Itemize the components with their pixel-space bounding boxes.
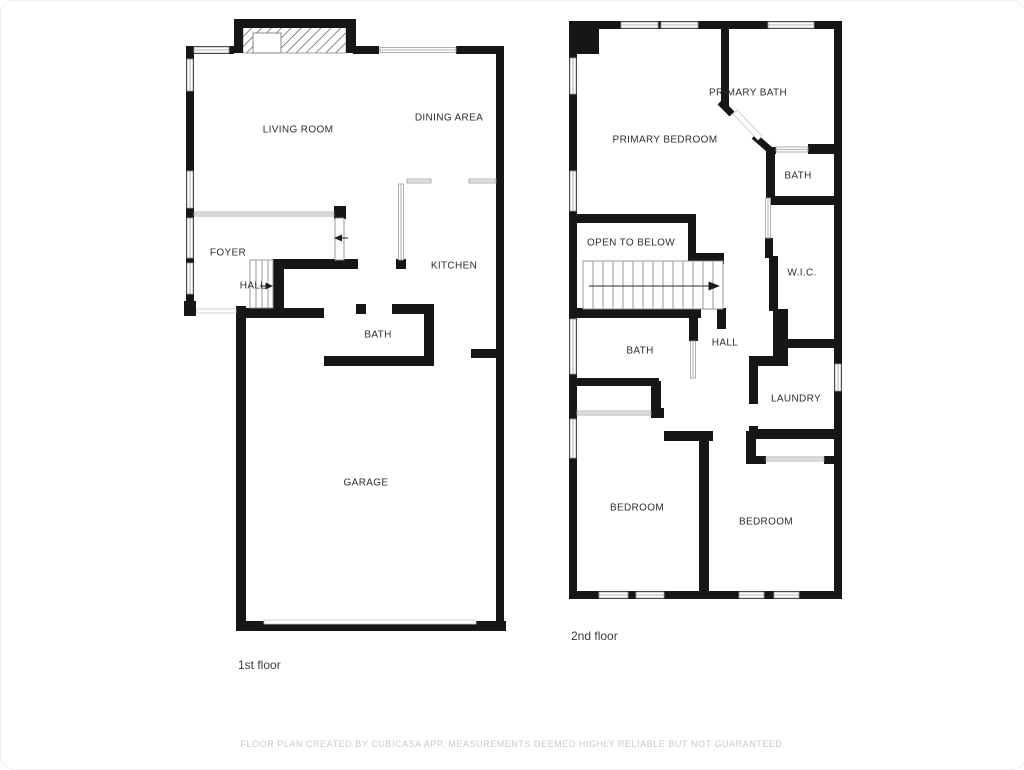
floor-plan-page: LIVING ROOM DINING AREA FOYER HALL KITCH… [0,0,1024,770]
room-label-dining-area: DINING AREA [415,113,483,124]
floor1-interior-walls [273,206,504,366]
front-door [197,309,236,313]
room-label-open-to-below: OPEN TO BELOW [587,238,675,249]
room-label-bath-2f-top: BATH [784,171,811,182]
floor1-label: 1st floor [238,658,281,672]
room-label-primary-bath: PRIMARY BATH [709,88,787,99]
room-label-bedroom-right: BEDROOM [739,517,793,528]
room-label-garage: GARAGE [344,478,389,489]
room-label-bedroom-left: BEDROOM [610,503,664,514]
floor2-label: 2nd floor [571,629,618,643]
room-label-hall-1f: HALL [240,281,266,292]
room-label-bath-2f-mid: BATH [626,346,653,357]
floor2-stairs [583,261,723,309]
garage-door [264,620,476,624]
room-label-foyer: FOYER [210,248,246,259]
room-label-primary-bedroom: PRIMARY BEDROOM [613,135,718,146]
room-label-kitchen: KITCHEN [431,261,477,272]
room-label-wic: W.I.C. [787,268,816,279]
primary-bath-door [733,110,762,140]
disclaimer-text: FLOOR PLAN CREATED BY CUBICASA APP. MEAS… [240,739,785,749]
fireplace [234,19,356,53]
floor-plan-drawing [1,1,1024,769]
room-label-living-room: LIVING ROOM [263,125,334,136]
floor1-exterior-walls [184,46,506,631]
room-label-hall-2f: HALL [712,338,738,349]
floor1-plan [184,19,506,631]
room-label-bath-1f: BATH [364,330,391,341]
room-label-laundry: LAUNDRY [771,394,821,405]
